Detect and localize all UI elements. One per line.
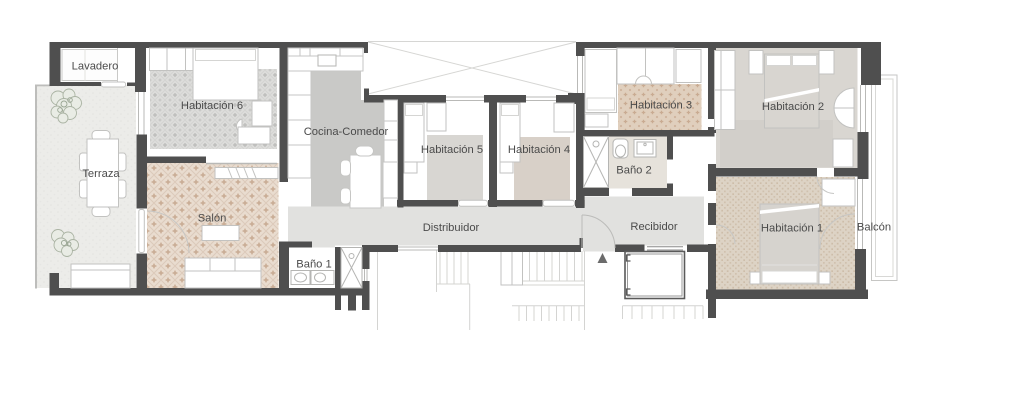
svg-text:Lavadero: Lavadero bbox=[72, 61, 119, 73]
svg-text:Balcón: Balcón bbox=[857, 222, 891, 234]
svg-text:Habitación 3: Habitación 3 bbox=[630, 100, 692, 112]
svg-text:Habitación 6: Habitación 6 bbox=[181, 100, 243, 112]
svg-text:Habitación 2: Habitación 2 bbox=[762, 101, 824, 113]
svg-text:Habitación 5: Habitación 5 bbox=[421, 144, 483, 156]
svg-text:Recibidor: Recibidor bbox=[630, 221, 678, 233]
svg-text:Baño 2: Baño 2 bbox=[616, 165, 651, 177]
svg-text:Salón: Salón bbox=[198, 212, 227, 224]
svg-text:Cocina-Comedor: Cocina-Comedor bbox=[304, 126, 389, 138]
svg-text:Terraza: Terraza bbox=[82, 168, 120, 180]
svg-text:Baño 1: Baño 1 bbox=[296, 259, 331, 271]
svg-text:Habitación 1: Habitación 1 bbox=[761, 223, 823, 235]
svg-text:Distribuidor: Distribuidor bbox=[423, 222, 480, 234]
svg-text:Habitación 4: Habitación 4 bbox=[508, 144, 570, 156]
